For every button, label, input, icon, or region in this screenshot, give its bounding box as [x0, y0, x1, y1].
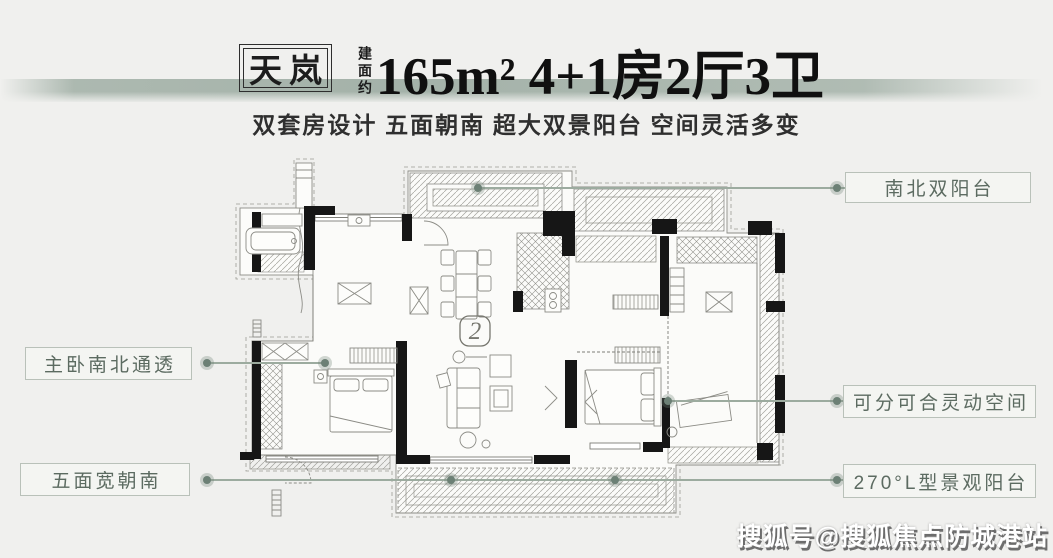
callout-l-balcony: 270°L型景观阳台: [843, 464, 1036, 498]
leader-dot: [833, 397, 841, 405]
leader-north-balcony: [478, 187, 846, 189]
leader-south-bays-l-balcony: [207, 479, 844, 481]
callout-north-balcony: 南北双阳台: [845, 172, 1031, 203]
leader-dot: [447, 476, 455, 484]
leader-dot: [474, 184, 482, 192]
callout-south-bays: 五面宽朝南: [20, 463, 190, 496]
callout-flex-space: 可分可合灵动空间: [843, 385, 1036, 418]
leader-dot: [321, 359, 329, 367]
plan-number: 2: [469, 318, 482, 345]
leader-dot: [203, 476, 211, 484]
callout-master-bedroom: 主卧南北通透: [25, 347, 192, 380]
leader-master: [207, 362, 326, 364]
leader-dot: [833, 184, 841, 192]
leader-flex: [668, 400, 844, 402]
leader-dot: [611, 476, 619, 484]
page-subtitle: 双套房设计 五面朝南 超大双景阳台 空间灵活多变: [0, 106, 1053, 140]
project-name-badge: 天岚: [239, 44, 332, 92]
area-prefix-label: 建面约: [353, 46, 373, 98]
watermark: 搜狐号@搜狐焦点防城港站: [737, 517, 1048, 553]
page-title: 165m² 4+1房2厅3卫: [376, 34, 824, 110]
floor-plan: 2: [228, 152, 858, 530]
promo-page: { "page": { "background": "#f0f0ee", "ac…: [0, 0, 1053, 558]
leader-dot: [203, 359, 211, 367]
leader-dot: [664, 397, 672, 405]
leader-dot: [833, 476, 841, 484]
